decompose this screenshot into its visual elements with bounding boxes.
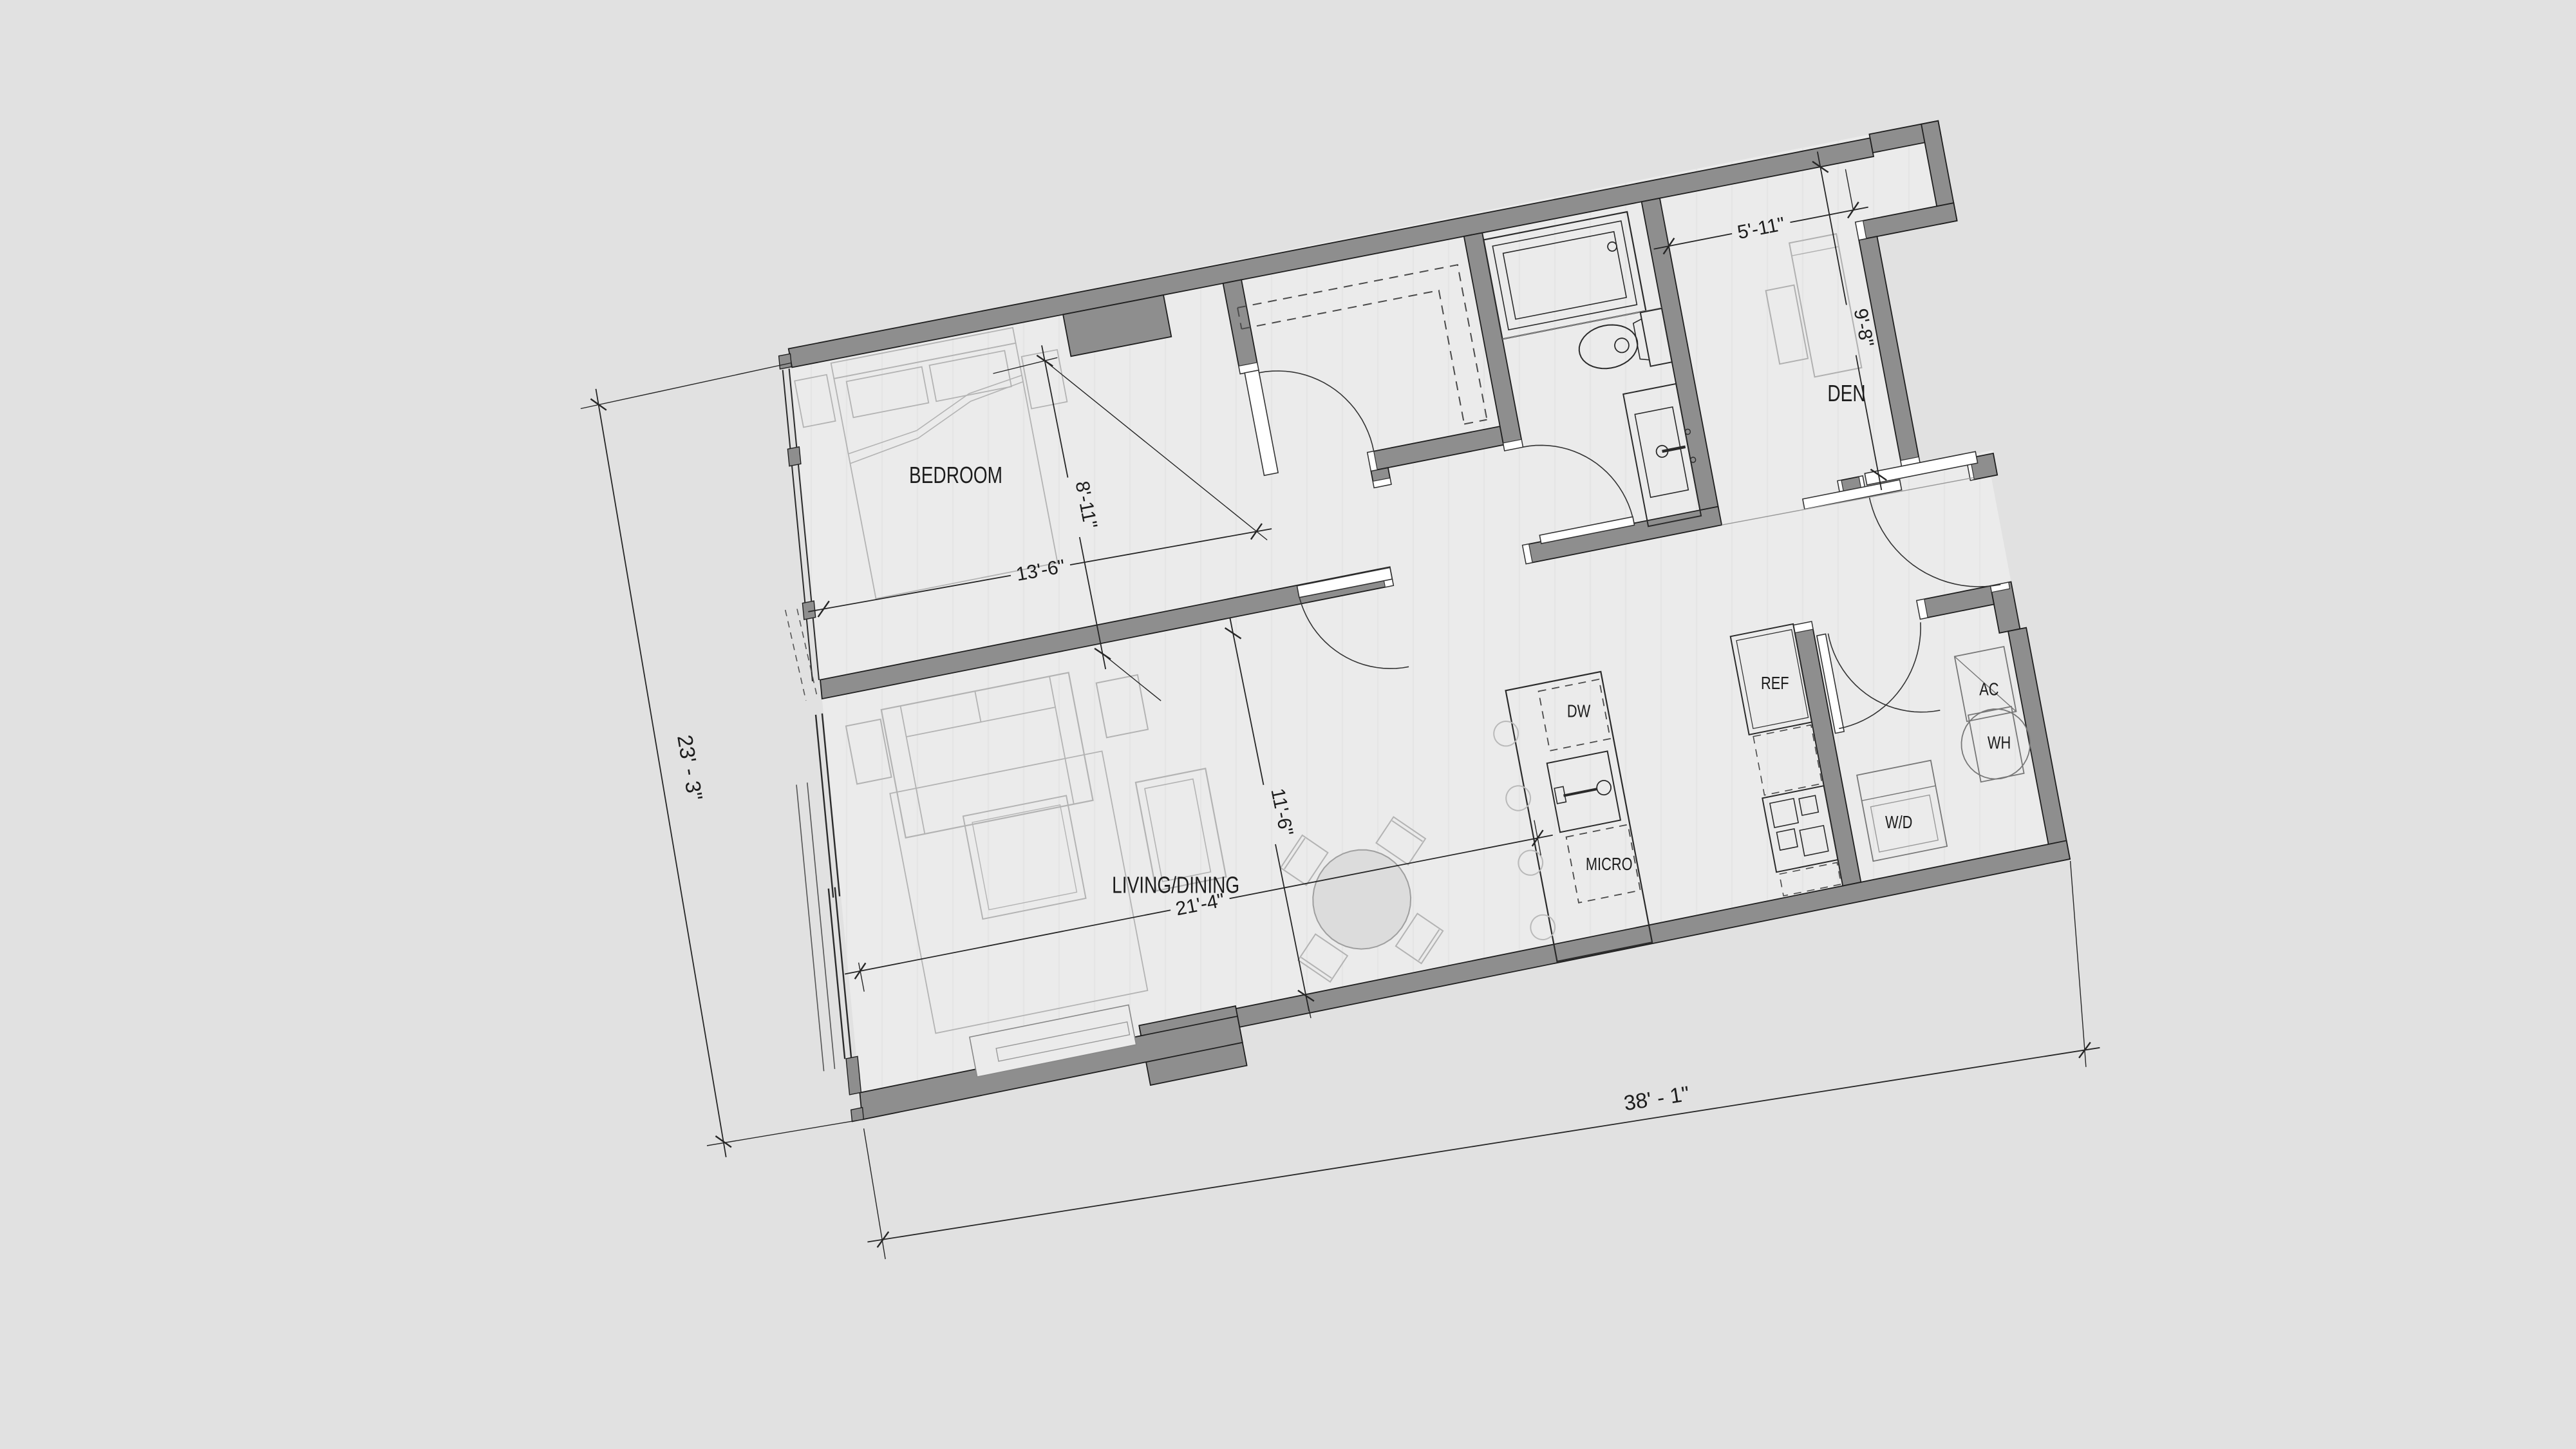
svg-text:W/D: W/D [1885,813,1912,833]
svg-text:WH: WH [1988,733,2011,753]
svg-text:REF: REF [1761,674,1789,694]
svg-text:DEN: DEN [1827,380,1865,406]
svg-text:AC: AC [1979,679,1998,699]
svg-text:DW: DW [1567,701,1591,721]
svg-text:MICRO: MICRO [1586,855,1633,875]
svg-text:LIVING/DINING: LIVING/DINING [1112,872,1239,898]
svg-text:BEDROOM: BEDROOM [909,462,1002,488]
